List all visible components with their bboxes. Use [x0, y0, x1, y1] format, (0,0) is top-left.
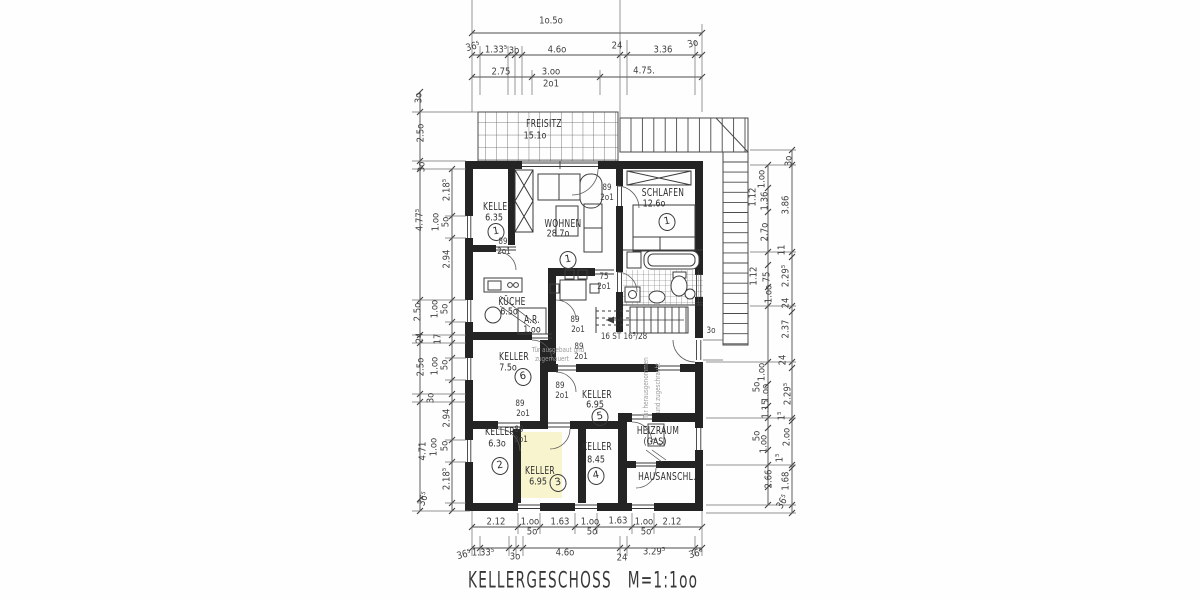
- sink-icon: [488, 281, 501, 290]
- hall-door-swing: [556, 300, 576, 320]
- shaft-icon: [515, 170, 691, 232]
- washer-icon: [625, 287, 640, 302]
- bath-fixtures: [623, 251, 703, 305]
- cistern-icon: [627, 252, 641, 268]
- stove-icon: [508, 283, 513, 288]
- coffee-table-icon: [556, 206, 578, 236]
- entry-door-swing: [673, 340, 695, 362]
- washbasin-icon: [649, 291, 665, 303]
- floorplan-scan: KELLERGESCHOSS M=1:1oo 1o.5o36⁵1.33⁵3o4.…: [0, 0, 1200, 600]
- staircase: [596, 307, 688, 333]
- terrace-door-swing: [572, 169, 598, 195]
- highlight-marker: [514, 432, 562, 498]
- hausanschluss-door-swing: [636, 468, 656, 488]
- kitchen-table-icon: [485, 307, 501, 323]
- boiler-icon: [646, 424, 666, 462]
- bed-icon: [633, 205, 695, 251]
- heizraum-door-swing: [632, 422, 652, 442]
- freisitz-terrace: [478, 112, 618, 161]
- keller1-door-swing: [498, 252, 516, 270]
- sofa-corner-icon: [580, 174, 602, 208]
- dining-table-icon: [560, 280, 586, 300]
- keller5-door-swing: [556, 372, 576, 392]
- floorplan-drawing: [0, 0, 1200, 600]
- kitchen-fixtures: [484, 278, 546, 334]
- exterior-stairs-icon: [620, 118, 748, 360]
